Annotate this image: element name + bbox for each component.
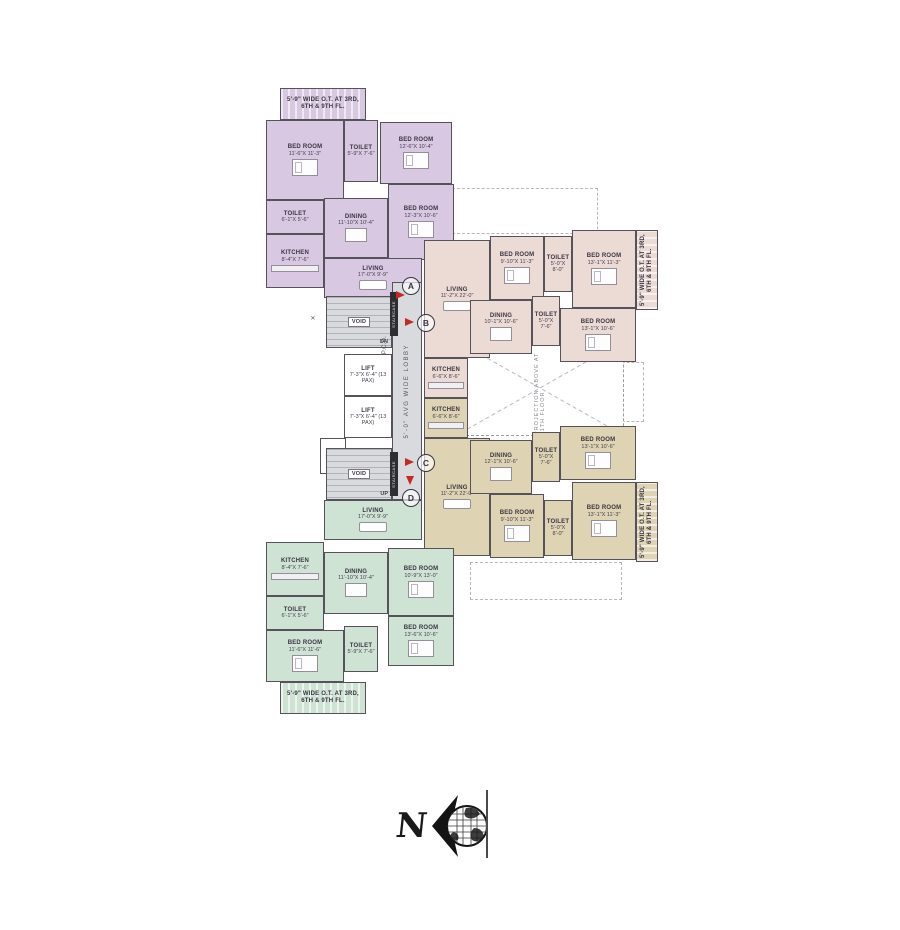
dining-label: DINING xyxy=(345,214,367,221)
toilet-dimensions: 6'-1"X 5'-6" xyxy=(281,217,308,223)
toilet-label: TOILET xyxy=(547,255,569,262)
dining-table-icon xyxy=(490,327,512,341)
living-dimensions: 11'-2"X 22'-0" xyxy=(441,293,474,299)
bedroom-dimensions: 9'-10"X 11'-3" xyxy=(501,517,534,523)
room-toilet: TOILET5'-0"X 7'-6" xyxy=(532,296,560,346)
bedroom-dimensions: 13'-1"X 11'-3" xyxy=(588,512,621,518)
toilet-label: TOILET xyxy=(350,145,372,152)
living-dimensions: 11'-2"X 22'-0" xyxy=(441,491,474,497)
room-note: ✕ xyxy=(300,306,326,332)
entry-arrow-icon xyxy=(405,318,414,326)
toilet-label: TOILET xyxy=(535,312,557,319)
room-toilet: TOILET5'-9"X 7'-6" xyxy=(344,626,378,672)
kitchen-counter-icon xyxy=(428,382,464,389)
entry-arrow-icon xyxy=(406,476,414,485)
bedroom-label: BED ROOM xyxy=(581,437,616,444)
north-letter: N xyxy=(394,806,429,846)
sofa-icon xyxy=(359,280,387,290)
room-balcony: 5'-9" WIDE O.T. AT 3RD, 6TH & 9TH FL. xyxy=(636,482,658,562)
entry-arrow-icon xyxy=(396,291,405,299)
bedroom-label: BED ROOM xyxy=(587,505,622,512)
kitchen-label: KITCHEN xyxy=(432,407,460,414)
toilet-dimensions: 5'-0"X 7'-6" xyxy=(534,318,558,330)
room-kitchen: KITCHEN6'-6"X 8'-6" xyxy=(424,398,468,438)
room-toilet: TOILET5'-0"X 7'-6" xyxy=(532,432,560,482)
room-balcony: 5'-9" WIDE O.T. AT 3RD, 6TH & 9TH FL. xyxy=(280,682,366,714)
toilet-dimensions: 5'-0"X 8'-0" xyxy=(546,525,570,537)
room-bedroom: BED ROOM13'-1"X 10'-6" xyxy=(560,308,636,362)
room-lift: LIFT7'-3"X 6'-4" (13 PAX) xyxy=(344,354,392,396)
toilet-label: TOILET xyxy=(535,448,557,455)
stair-label: VOID xyxy=(348,317,370,327)
bed-icon xyxy=(408,221,434,238)
living-label: LIVING xyxy=(446,287,467,294)
lift-dimensions: 7'-3"X 6'-4" (13 PAX) xyxy=(346,414,390,426)
balcony-label: 5'-9" WIDE O.T. AT 3RD, 6TH & 9TH FL. xyxy=(282,691,364,705)
room-toilet: TOILET6'-1"X 5'-6" xyxy=(266,596,324,630)
bedroom-label: BED ROOM xyxy=(500,252,535,259)
room-bedroom: BED ROOM13'-1"X 11'-3" xyxy=(572,482,636,560)
room-bedroom: BED ROOM11'-6"X 11'-3" xyxy=(266,120,344,200)
bar-label: STAIRCASE xyxy=(392,461,397,488)
bedroom-dimensions: 11'-6"X 11'-3" xyxy=(289,151,321,157)
dining-table-icon xyxy=(345,583,367,597)
room-toilet: TOILET5'-9"X 7'-6" xyxy=(344,120,378,182)
room-bar: STAIRCASE xyxy=(390,452,398,496)
bedroom-label: BED ROOM xyxy=(404,206,439,213)
bedroom-dimensions: 12'-6"X 10'-4" xyxy=(399,144,432,150)
bedroom-label: BED ROOM xyxy=(500,510,535,517)
north-compass: N xyxy=(392,790,496,862)
dining-label: DINING xyxy=(490,313,512,320)
living-label: LIVING xyxy=(446,485,467,492)
dining-dimensions: 11'-10"X 10'-4" xyxy=(338,220,374,226)
balcony-label: 5'-9" WIDE O.T. AT 3RD, 6TH & 9TH FL. xyxy=(640,484,654,560)
living-label: LIVING xyxy=(362,508,383,515)
bedroom-dimensions: 13'-1"X 10'-6" xyxy=(581,444,614,450)
bedroom-label: BED ROOM xyxy=(288,144,323,151)
room-kitchen: KITCHEN6'-6"X 8'-6" xyxy=(424,358,468,398)
kitchen-counter-icon xyxy=(428,422,464,429)
bed-icon xyxy=(591,268,617,285)
bedroom-label: BED ROOM xyxy=(587,253,622,260)
bedroom-dimensions: 13'-1"X 11'-3" xyxy=(588,260,621,266)
room-dining: DINING11'-10"X 10'-4" xyxy=(324,198,388,258)
bedroom-dimensions: 11'-6"X 11'-6" xyxy=(289,647,321,653)
lift-dimensions: 7'-3"X 6'-4" (13 PAX) xyxy=(346,372,390,384)
note-label: ✕ xyxy=(310,316,315,323)
kitchen-dimensions: 8'-4"X 7'-6" xyxy=(281,257,308,263)
balcony-label: 5'-9" WIDE O.T. AT 3RD, 6TH & 9TH FL. xyxy=(282,97,364,111)
toilet-dimensions: 6'-1"X 5'-6" xyxy=(281,613,308,619)
lift-label: LIFT xyxy=(361,366,374,373)
room-bedroom: BED ROOM10'-9"X 13'-0" xyxy=(388,548,454,616)
toilet-dimensions: 5'-0"X 8'-0" xyxy=(546,261,570,273)
sofa-icon xyxy=(359,522,387,532)
balcony-label: 5'-9" WIDE O.T. AT 3RD, 6TH & 9TH FL. xyxy=(640,232,654,308)
room-balcony: 5'-9" WIDE O.T. AT 3RD, 6TH & 9TH FL. xyxy=(636,230,658,310)
room-dining: DINING10'-1"X 10'-6" xyxy=(470,300,532,354)
floor-plan: PROJECTION ABOVE AT 11TH FLOOR N 5'-9" W… xyxy=(0,0,900,930)
toilet-label: TOILET xyxy=(284,211,306,218)
bedroom-label: BED ROOM xyxy=(399,137,434,144)
dining-label: DINING xyxy=(345,569,367,576)
sofa-icon xyxy=(443,301,471,311)
bedroom-label: BED ROOM xyxy=(581,319,616,326)
room-bedroom: BED ROOM13'-1"X 11'-3" xyxy=(572,230,636,308)
living-dimensions: 17'-0"X 9'-9" xyxy=(358,514,388,520)
entry-marker-c: C xyxy=(417,454,435,472)
room-bedroom: BED ROOM11'-6"X 11'-6" xyxy=(266,630,344,682)
stair-label: VOID xyxy=(348,469,370,479)
room-dining: DINING12'-1"X 10'-6" xyxy=(470,440,532,494)
room-kitchen: KITCHEN8'-4"X 7'-6" xyxy=(266,234,324,288)
kitchen-dimensions: 6'-6"X 8'-6" xyxy=(432,374,459,380)
room-balcony: 5'-9" WIDE O.T. AT 3RD, 6TH & 9TH FL. xyxy=(280,88,366,120)
bedroom-dimensions: 10'-9"X 13'-0" xyxy=(404,573,437,579)
bed-icon xyxy=(585,334,611,351)
dashed-outline-bottom xyxy=(470,562,622,600)
room-bedroom: BED ROOM9'-10"X 11'-3" xyxy=(490,494,544,558)
dining-dimensions: 10'-1"X 10'-6" xyxy=(484,319,517,325)
toilet-dimensions: 5'-0"X 7'-6" xyxy=(534,454,558,466)
living-label: LIVING xyxy=(362,266,383,273)
room-bedroom: BED ROOM9'-10"X 11'-3" xyxy=(490,236,544,300)
room-stair: VOIDUP xyxy=(326,448,392,500)
projection-label: PROJECTION ABOVE AT 11TH FLOOR xyxy=(534,341,546,435)
toilet-label: TOILET xyxy=(284,607,306,614)
bed-icon xyxy=(403,152,429,169)
room-bedroom: BED ROOM13'-6"X 10'-6" xyxy=(388,616,454,666)
room-lift: LIFT7'-3"X 6'-4" (13 PAX) xyxy=(344,396,392,438)
kitchen-counter-icon xyxy=(271,265,319,272)
bed-icon xyxy=(504,525,530,542)
bed-icon xyxy=(292,159,318,176)
bedroom-dimensions: 9'-10"X 11'-3" xyxy=(501,259,534,265)
bedroom-label: BED ROOM xyxy=(288,640,323,647)
bed-icon xyxy=(585,452,611,469)
bed-icon xyxy=(292,655,318,672)
room-toilet: TOILET5'-0"X 8'-0" xyxy=(544,500,572,556)
room-bedroom: BED ROOM12'-6"X 10'-4" xyxy=(380,122,452,184)
entry-marker-d: D xyxy=(402,489,420,507)
room-bedroom: BED ROOM13'-1"X 10'-6" xyxy=(560,426,636,480)
dining-label: DINING xyxy=(490,453,512,460)
room-toilet: TOILET5'-0"X 8'-0" xyxy=(544,236,572,292)
dining-table-icon xyxy=(490,467,512,481)
bedroom-dimensions: 13'-6"X 10'-6" xyxy=(404,632,437,638)
kitchen-dimensions: 6'-6"X 8'-6" xyxy=(432,414,459,420)
compass-divider-line xyxy=(486,790,488,858)
bed-icon xyxy=(408,640,434,657)
bedroom-dimensions: 13'-1"X 10'-6" xyxy=(581,326,614,332)
kitchen-counter-icon xyxy=(271,573,319,580)
note-label: P.C.D. xyxy=(382,336,389,354)
dashed-terrace-outline-top xyxy=(452,188,598,234)
stair-dimensions: UP xyxy=(380,491,388,497)
bedroom-label: BED ROOM xyxy=(404,625,439,632)
living-dimensions: 17'-0"X 9'-9" xyxy=(358,272,388,278)
dining-dimensions: 12'-1"X 10'-6" xyxy=(484,459,517,465)
bedroom-label: BED ROOM xyxy=(404,566,439,573)
kitchen-label: KITCHEN xyxy=(432,367,460,374)
entry-marker-b: B xyxy=(417,314,435,332)
room-toilet: TOILET6'-1"X 5'-6" xyxy=(266,200,324,234)
compass-arrow-globe-icon xyxy=(430,792,488,860)
bedroom-dimensions: 12'-3"X 10'-6" xyxy=(404,213,437,219)
sofa-icon xyxy=(443,499,471,509)
bed-icon xyxy=(504,267,530,284)
kitchen-dimensions: 8'-4"X 7'-6" xyxy=(281,565,308,571)
lobby-label: 5'-0" AVG WIDE LOBBY xyxy=(404,344,411,439)
kitchen-label: KITCHEN xyxy=(281,250,309,257)
toilet-dimensions: 5'-9"X 7'-6" xyxy=(347,649,374,655)
toilet-dimensions: 5'-9"X 7'-6" xyxy=(347,151,374,157)
dining-table-icon xyxy=(345,228,367,242)
entry-arrow-icon xyxy=(405,458,414,466)
room-dining: DINING11'-10"X 10'-4" xyxy=(324,552,388,614)
bed-icon xyxy=(408,581,434,598)
bed-icon xyxy=(591,520,617,537)
kitchen-label: KITCHEN xyxy=(281,558,309,565)
room-kitchen: KITCHEN8'-4"X 7'-6" xyxy=(266,542,324,596)
toilet-label: TOILET xyxy=(547,519,569,526)
bar-label: STAIRCASE xyxy=(392,301,397,328)
toilet-label: TOILET xyxy=(350,643,372,650)
lift-label: LIFT xyxy=(361,408,374,415)
dining-dimensions: 11'-10"X 10'-4" xyxy=(338,575,374,581)
